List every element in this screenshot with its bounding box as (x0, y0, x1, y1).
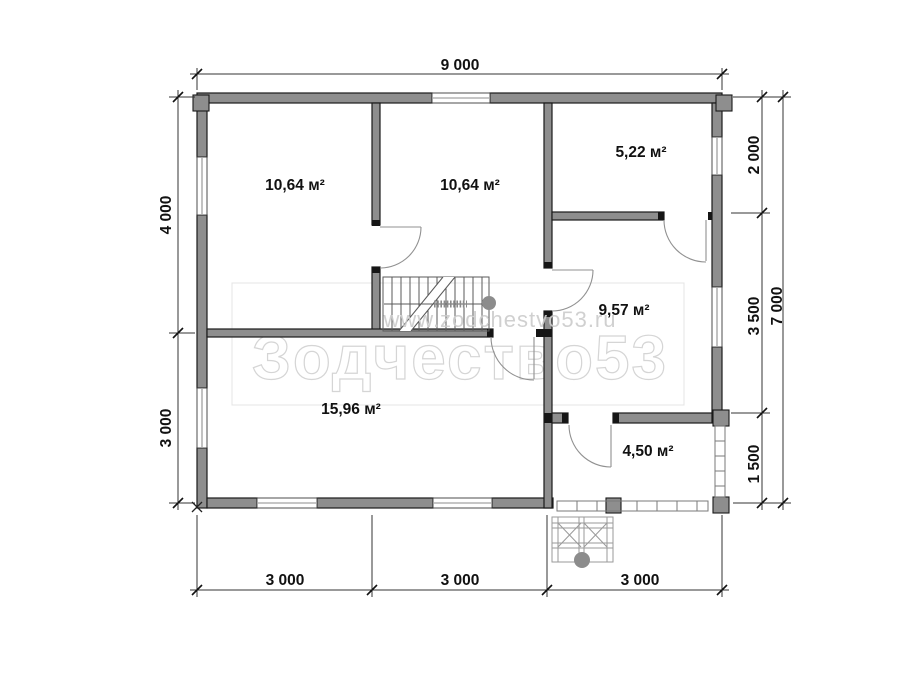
room-label-3: 5,22 м² (615, 144, 666, 161)
window-left-lower (197, 388, 207, 448)
window-right-lower (712, 287, 722, 347)
dim-top: 9 000 (441, 57, 480, 74)
room-label-1: 10,64 м² (265, 177, 325, 194)
door-room3 (664, 220, 706, 262)
floor-plan-canvas: Зодчество53 (0, 0, 920, 690)
dim-bottom-2: 3 000 (441, 572, 480, 589)
floor-plan: Зодчество53 (0, 0, 920, 690)
dim-left-lower: 3 000 (158, 409, 175, 448)
dim-right-1500: 1 500 (746, 445, 763, 484)
porch-railing (557, 426, 725, 511)
dim-right-3500: 3 500 (746, 297, 763, 336)
door-room1-hall (380, 227, 421, 268)
window-top (432, 93, 490, 103)
steps-column-marker (574, 552, 590, 568)
door-porch (569, 425, 611, 467)
dim-bottom-1: 3 000 (266, 572, 305, 589)
room-label-6: 4,50 м² (622, 443, 673, 460)
window-bottom-right (433, 498, 492, 508)
room-area-labels: 10,64 м² 10,64 м² 5,22 м² 9,57 м² 15,96 … (265, 144, 673, 460)
entry-steps (552, 517, 613, 568)
dim-right-2000: 2 000 (746, 136, 763, 175)
door-hall-room4 (552, 270, 593, 311)
dim-bottom-3: 3 000 (621, 572, 660, 589)
dim-right-total: 7 000 (769, 287, 786, 326)
watermark-url: www.zodchestvo53.ru (383, 307, 617, 332)
window-bottom-left (257, 498, 317, 508)
dim-left-upper: 4 000 (158, 196, 175, 235)
room-label-4: 9,57 м² (598, 302, 649, 319)
window-left-upper (197, 157, 207, 215)
room-label-5: 15,96 м² (321, 401, 381, 418)
window-right-upper (712, 137, 722, 175)
room-label-2: 10,64 м² (440, 177, 500, 194)
